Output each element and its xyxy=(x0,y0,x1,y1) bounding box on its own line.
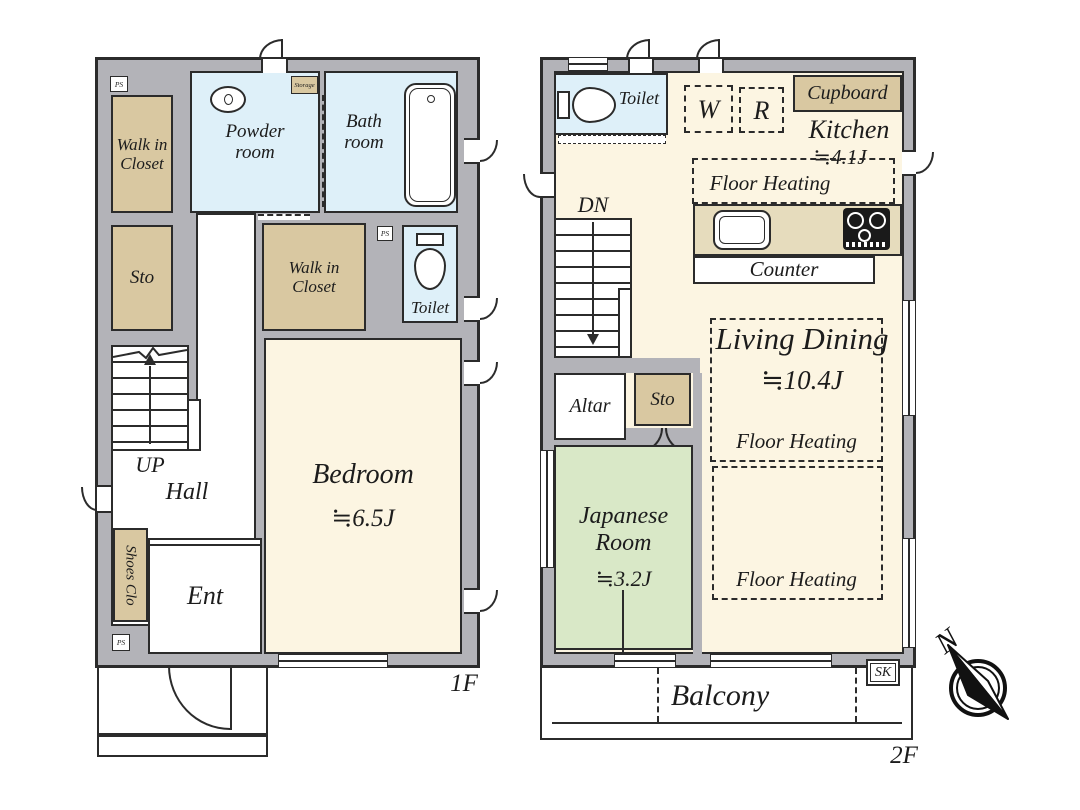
living-dining-size-label: ≒10.4J xyxy=(740,364,864,398)
toilet-2f-tank-icon xyxy=(557,91,570,119)
door-arc-r1 xyxy=(480,140,498,162)
walk-in-closet-1: Walk in Closet xyxy=(111,95,173,213)
storage-room-1f: Sto xyxy=(111,225,173,331)
walk-in-closet-1-label: Walk in Closet xyxy=(113,135,171,173)
hall-label: Hall xyxy=(147,478,227,506)
compass-icon: N xyxy=(925,608,1025,733)
floor-heating-kitchen-label: Floor Heating xyxy=(700,170,840,198)
corridor-1f xyxy=(196,213,256,453)
door-opening-r1 xyxy=(464,138,480,164)
ent-label: Ent xyxy=(187,581,223,610)
stairs-2f-rail xyxy=(618,288,632,358)
wic2-sliding-door xyxy=(258,214,310,220)
cupboard-label: Cupboard xyxy=(807,82,887,104)
door-leaf-top-2f-2 xyxy=(718,39,720,59)
door-opening-top-2f-2 xyxy=(698,59,724,73)
washer-label: W xyxy=(684,88,733,132)
bedroom-size-label: ≒6.5J xyxy=(331,505,394,533)
balcony-inner-line xyxy=(552,722,902,724)
walk-in-closet-2-label: Walk in Closet xyxy=(279,258,349,296)
window-bedroom-south xyxy=(278,654,388,668)
storage-room-2f: Sto xyxy=(634,373,691,426)
wall-ld-left xyxy=(693,373,702,654)
door-arc-left-1f xyxy=(81,487,97,511)
door-opening-left-2f xyxy=(540,172,554,198)
door-arc-top-2f-1 xyxy=(626,39,650,59)
door-arc-r2 xyxy=(480,298,498,320)
door-arc-top-1f xyxy=(259,39,283,59)
door-arc-kitchen-right xyxy=(916,152,934,174)
kitchen-sink-icon xyxy=(713,210,771,250)
wall-stairs-altar xyxy=(554,358,700,373)
bedroom-label: Bedroom xyxy=(312,459,414,490)
door-opening-top-1f xyxy=(261,59,288,73)
floor1-label: 1F xyxy=(440,670,488,698)
toilet-1f-tank-icon xyxy=(416,233,444,246)
powder-room-label: Powder room xyxy=(214,121,296,164)
bathtub-icon xyxy=(404,83,456,207)
stove-icon xyxy=(843,208,890,250)
door-opening-r4 xyxy=(464,588,480,614)
fridge-label: R xyxy=(739,90,784,132)
sliding-door-dashes xyxy=(322,95,324,207)
window-ld-south xyxy=(710,654,832,668)
japanese-size-label: ≒3.2J xyxy=(596,567,652,592)
door-arc-left-2f xyxy=(523,174,540,198)
bedroom: Bedroom ≒6.5J xyxy=(264,338,462,654)
door-opening-r3 xyxy=(464,360,480,386)
floor2-label: 2F xyxy=(880,742,928,770)
door-leaf-top-1f xyxy=(281,39,283,59)
walk-in-closet-2: Walk in Closet xyxy=(262,223,366,331)
shoes-clo-label: Shoes Clo xyxy=(122,545,139,605)
door-opening-r2 xyxy=(464,296,480,322)
ps-badge-3: PS xyxy=(112,634,130,651)
compass-north-text: N xyxy=(928,621,966,661)
door-leaf-top-2f-1 xyxy=(648,39,650,59)
balcony-label: Balcony xyxy=(640,674,800,716)
toilet-2f-sliding-door xyxy=(558,135,666,144)
altar-room: Altar xyxy=(554,373,626,440)
window-toilet-2f xyxy=(568,57,608,71)
window-japanese-south xyxy=(614,654,676,668)
living-dining-label: Living Dining xyxy=(702,320,902,358)
door-arc-r4 xyxy=(480,590,498,612)
window-ld-east-1 xyxy=(902,300,916,416)
porch-step xyxy=(97,735,268,757)
balcony-divider-2 xyxy=(855,668,857,722)
stairs-2f-guide-line xyxy=(592,222,594,334)
counter-label: Counter xyxy=(750,258,819,282)
ps-3-label: PS xyxy=(117,638,125,647)
counter-front: Counter xyxy=(693,256,875,284)
door-opening-top-2f-1 xyxy=(628,59,654,73)
sto-1f-label: Sto xyxy=(130,267,154,288)
bath-room-label: Bath room xyxy=(332,111,396,154)
japanese-room-divider xyxy=(622,590,624,652)
door-opening-kitchen-right xyxy=(902,150,916,176)
sk-label: SK xyxy=(875,665,891,681)
sink-drain-icon xyxy=(224,94,233,105)
ps-badge-1: PS xyxy=(110,76,128,92)
up-label: UP xyxy=(122,452,178,478)
stairs-1f-rail xyxy=(187,399,201,451)
stairs-down-arrow-icon xyxy=(587,334,599,345)
sto-2f-label: Sto xyxy=(650,389,674,410)
entry-door-leaf xyxy=(230,666,232,730)
sk-box: SK xyxy=(866,659,900,686)
toilet-2f-label: Toilet xyxy=(610,86,668,112)
door-arc-r3 xyxy=(480,362,498,384)
ps-2-label: PS xyxy=(381,229,389,238)
japanese-room-label: Japanese Room xyxy=(569,503,679,557)
storage-label: Storage xyxy=(294,82,314,89)
window-japanese-west xyxy=(540,450,554,568)
ps-badge-2: PS xyxy=(377,226,393,241)
entrance-step-line xyxy=(150,544,260,546)
altar-label: Altar xyxy=(569,395,610,417)
kitchen-label: Kitchen xyxy=(795,116,903,144)
window-ld-east-2 xyxy=(902,538,916,648)
cupboard: Cupboard xyxy=(793,75,902,112)
stairs-break-line-icon xyxy=(113,346,187,362)
floor-plan-canvas: Walk in Closet Powder room Storage Bath … xyxy=(0,0,1080,810)
floor-heating-b-label: Floor Heating xyxy=(712,566,881,594)
floor-heating-a-label: Floor Heating xyxy=(712,428,881,456)
door-opening-left-1f xyxy=(97,485,111,513)
entrance: Ent xyxy=(148,538,262,654)
door-arc-top-2f-2 xyxy=(696,39,720,59)
dn-label: DN xyxy=(568,192,618,218)
stairs-1f-guide-line xyxy=(149,366,151,444)
ps-1-label: PS xyxy=(115,80,123,89)
toilet-1f-label: Toilet xyxy=(411,298,449,317)
storage-box: Storage xyxy=(291,76,318,94)
shoes-closet: Shoes Clo xyxy=(113,528,148,622)
